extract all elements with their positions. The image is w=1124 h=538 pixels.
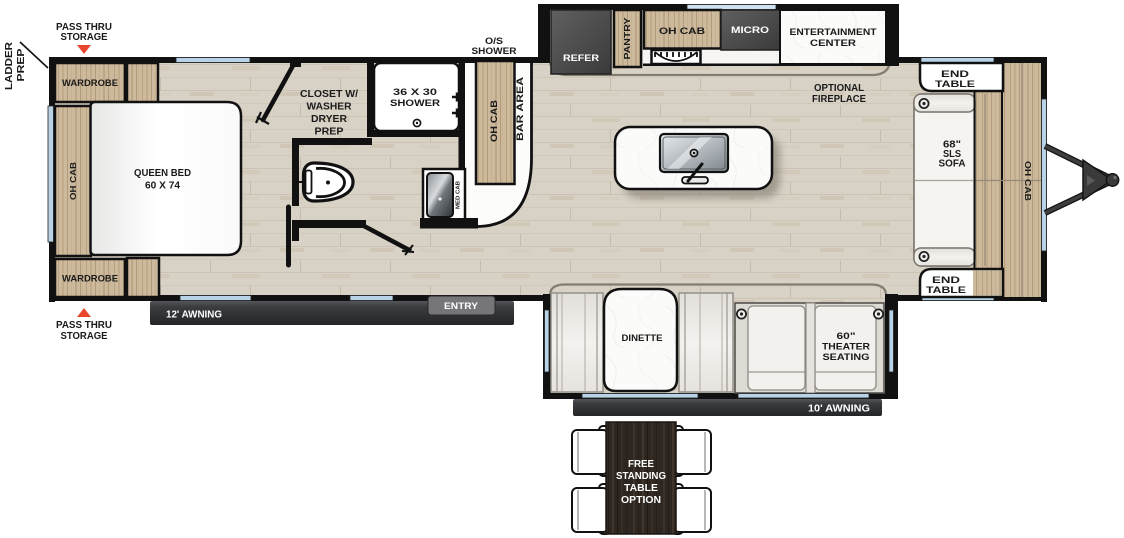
svg-text:10' AWNING: 10' AWNING (808, 403, 870, 415)
svg-text:OH CAB: OH CAB (68, 162, 78, 200)
svg-text:SHOWER: SHOWER (472, 46, 517, 57)
svg-text:FREE: FREE (628, 458, 654, 470)
svg-text:QUEEN BED: QUEEN BED (134, 168, 191, 179)
svg-text:SHOWER: SHOWER (390, 98, 440, 109)
svg-text:END: END (932, 275, 961, 285)
svg-text:THEATER: THEATER (822, 342, 870, 353)
svg-text:OH CAB: OH CAB (659, 26, 705, 37)
svg-text:STORAGE: STORAGE (61, 31, 108, 43)
svg-text:MED CAB: MED CAB (456, 181, 462, 209)
svg-text:TABLE: TABLE (926, 285, 966, 295)
svg-text:PANTRY: PANTRY (622, 17, 632, 59)
svg-text:CENTER: CENTER (810, 38, 856, 49)
svg-text:STORAGE: STORAGE (61, 330, 108, 342)
svg-text:ENTRY: ENTRY (444, 301, 479, 312)
svg-text:PREP: PREP (15, 49, 27, 82)
svg-text:STANDING: STANDING (616, 470, 666, 482)
svg-text:WARDROBE: WARDROBE (62, 78, 118, 88)
svg-text:WARDROBE: WARDROBE (62, 274, 118, 284)
svg-text:FIREPLACE: FIREPLACE (812, 94, 866, 105)
svg-text:BAR AREA: BAR AREA (515, 76, 525, 141)
svg-text:OPTIONAL: OPTIONAL (814, 83, 864, 94)
svg-text:WASHER: WASHER (307, 102, 353, 113)
svg-text:ENTERTAINMENT: ENTERTAINMENT (790, 27, 877, 38)
svg-text:36 X 30: 36 X 30 (393, 87, 437, 98)
svg-text:OPTION: OPTION (621, 494, 661, 506)
svg-text:TABLE: TABLE (624, 482, 658, 494)
svg-text:END: END (941, 69, 970, 79)
svg-text:SOFA: SOFA (939, 159, 966, 170)
svg-text:60 X 74: 60 X 74 (145, 181, 180, 192)
svg-text:60": 60" (837, 331, 856, 342)
svg-text:OH CAB: OH CAB (1023, 161, 1033, 201)
svg-text:12' AWNING: 12' AWNING (166, 309, 222, 321)
svg-text:PREP: PREP (315, 127, 344, 138)
svg-text:MICRO: MICRO (731, 25, 769, 36)
svg-text:SEATING: SEATING (823, 352, 870, 363)
svg-text:DRYER: DRYER (311, 114, 348, 125)
svg-text:TABLE: TABLE (935, 79, 975, 89)
svg-text:LADDER: LADDER (3, 42, 15, 90)
svg-text:OH CAB: OH CAB (489, 99, 499, 142)
svg-text:CLOSET W/: CLOSET W/ (300, 89, 358, 100)
svg-text:DINETTE: DINETTE (622, 333, 663, 344)
svg-text:REFER: REFER (563, 53, 600, 63)
